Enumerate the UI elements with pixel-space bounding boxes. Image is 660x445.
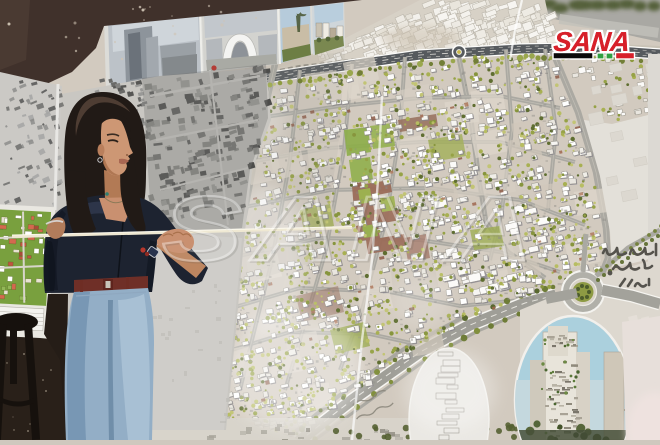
- svg-text:SANA: SANA: [162, 176, 542, 279]
